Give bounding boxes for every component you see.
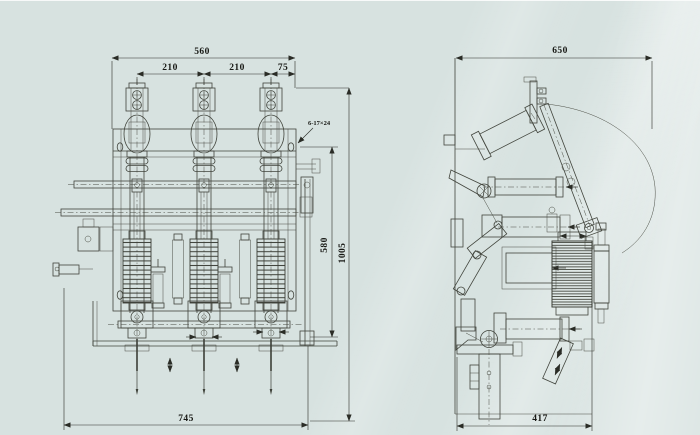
- contact-tube-mid: [482, 215, 580, 239]
- interphase-insulator: [173, 234, 184, 304]
- front-dimensions: 560 210 210 75 6-17×24 580 1005 745: [64, 47, 355, 430]
- upper-terminal: [524, 77, 546, 123]
- dim-label-210-b: 210: [229, 63, 244, 73]
- right-insulator: [594, 223, 609, 323]
- dim-label-580: 580: [320, 237, 330, 252]
- mounting-slot: [288, 291, 294, 299]
- dim-label-745: 745: [178, 414, 193, 424]
- interphase-insulator: [240, 234, 251, 304]
- support-insulator: [218, 259, 232, 308]
- upper-insulator: [471, 104, 544, 160]
- dim-label-650: 650: [552, 46, 567, 56]
- side-dimensions: 650 417: [456, 46, 652, 431]
- scanned-engineering-drawing: 560 210 210 75 6-17×24 580 1005 745: [0, 0, 700, 435]
- base-lever: [456, 327, 522, 425]
- pole-2: [188, 79, 220, 395]
- insulator-chain: [453, 221, 506, 331]
- dim-label-75: 75: [278, 63, 288, 73]
- hole-spec-label: 6-17×24: [308, 120, 331, 127]
- front-view-drawing: 560 210 210 75 6-17×24 580 1005 745: [53, 47, 355, 430]
- bellows-interrupter: [547, 207, 592, 315]
- dim-label-210-a: 210: [162, 63, 177, 73]
- fuse-tube-upper: [483, 177, 578, 197]
- side-view-drawing: 650 417: [444, 46, 655, 431]
- mounting-slot: [117, 291, 123, 299]
- support-insulator: [151, 259, 165, 308]
- dim-label-560: 560: [194, 47, 209, 57]
- dim-label-417: 417: [532, 414, 547, 424]
- pole-3: [255, 79, 287, 395]
- dim-label-1005: 1005: [338, 243, 348, 264]
- mounting-slot: [288, 143, 294, 151]
- engineering-drawing-canvas: 560 210 210 75 6-17×24 580 1005 745: [0, 1, 700, 435]
- mounting-slot: [117, 143, 123, 151]
- right-bracket: [296, 159, 320, 346]
- blade-swing-arc: [546, 104, 655, 253]
- striker-assembly: [543, 338, 574, 384]
- pole-1: [121, 79, 153, 395]
